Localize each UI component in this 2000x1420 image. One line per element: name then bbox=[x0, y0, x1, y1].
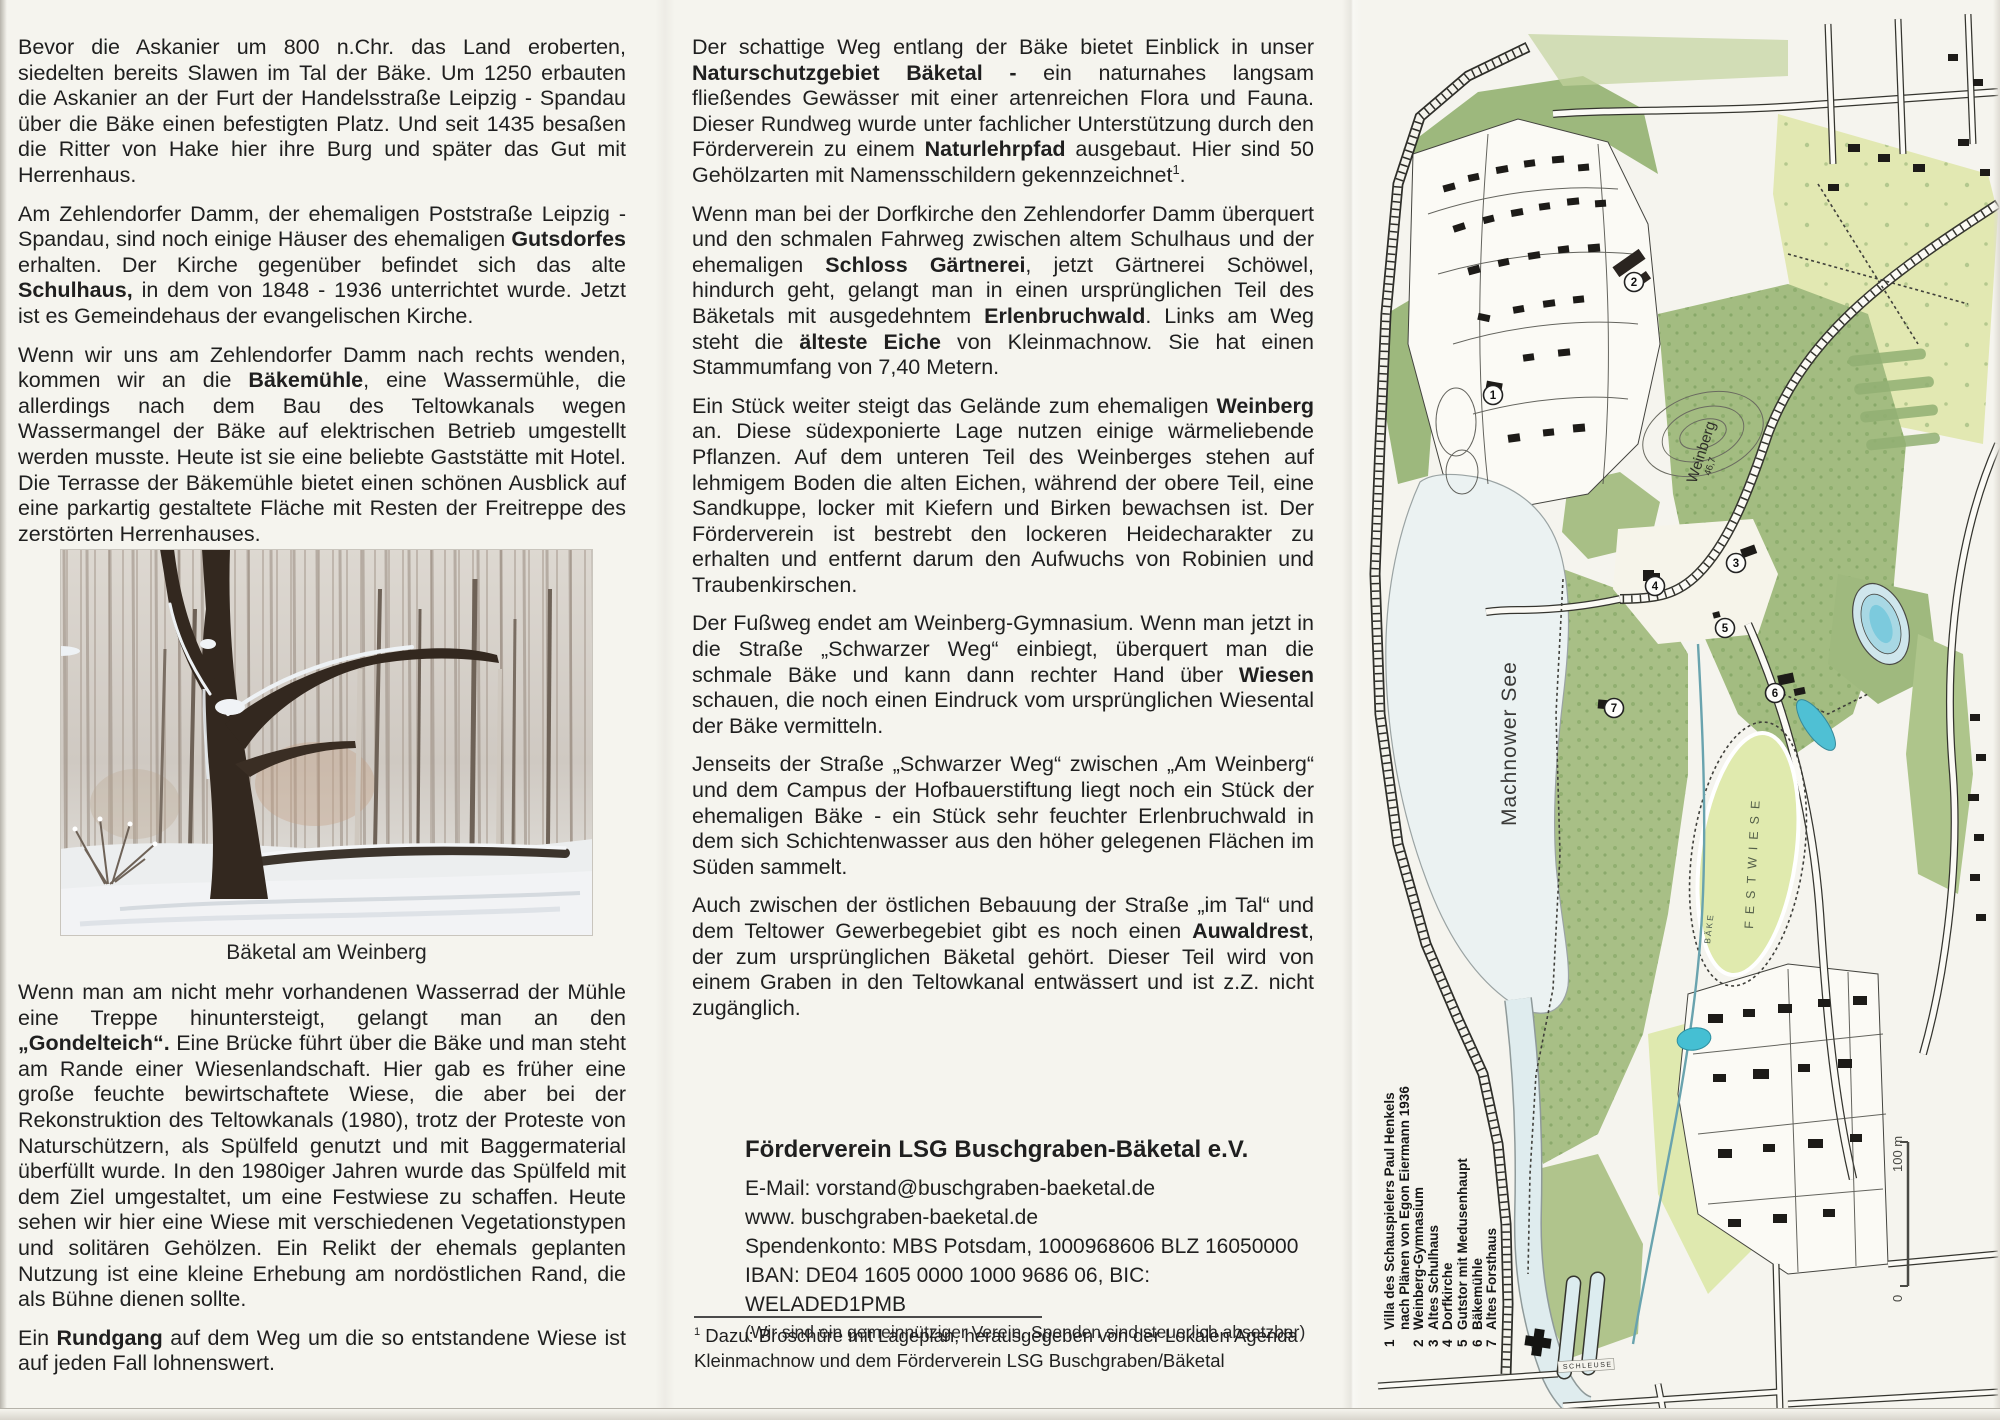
text-run: Eine Brücke führt über die Bäke und man … bbox=[18, 1031, 626, 1311]
footnote-marker: 1 bbox=[1172, 162, 1179, 177]
marker-5: 5 bbox=[1716, 619, 1735, 638]
legend-number bbox=[1398, 1330, 1413, 1347]
legend-entry: 4Dorfkirche bbox=[1441, 1045, 1456, 1347]
legend-entry: nach Plänen von Egon Eiermann 1936 bbox=[1398, 1045, 1413, 1347]
paragraph: Der Fußweg endet am Weinberg-Gymnasium. … bbox=[692, 611, 1314, 739]
legend-label: nach Plänen von Egon Eiermann 1936 bbox=[1398, 1045, 1413, 1330]
text-run: . bbox=[1180, 163, 1186, 187]
legend-entry: 6Bäkemühle bbox=[1471, 1045, 1486, 1347]
contact-line: Spendenkonto: MBS Potsdam, 1000968606 BL… bbox=[745, 1232, 1311, 1261]
svg-text:1: 1 bbox=[1490, 390, 1497, 402]
legend-label: Bäkemühle bbox=[1471, 1045, 1486, 1330]
text-run: Schloss Gärtnerei bbox=[825, 253, 1025, 277]
text-run: Bevor die Askanier um 800 n.Chr. das Lan… bbox=[18, 35, 626, 187]
marker-1: 1 bbox=[1484, 386, 1503, 405]
text-run: , eine Wassermühle, die allerdings nach … bbox=[18, 368, 626, 546]
text-run: Der schattige Weg entlang der Bäke biete… bbox=[692, 35, 1314, 59]
marker-7: 7 bbox=[1605, 699, 1624, 718]
paragraph: Am Zehlendorfer Damm, der ehemaligen Pos… bbox=[18, 202, 626, 330]
contact-block: Förderverein LSG Buschgraben-Bäketal e.V… bbox=[745, 1136, 1311, 1343]
paragraph: Der schattige Weg entlang der Bäke biete… bbox=[692, 35, 1314, 189]
legend-label: Weinberg-Gymnasium bbox=[1412, 1045, 1427, 1330]
text-run: Wenn man am nicht mehr vorhandenen Wasse… bbox=[18, 980, 626, 1030]
legend-number: 2 bbox=[1412, 1330, 1427, 1347]
svg-text:7: 7 bbox=[1611, 703, 1617, 715]
text-run: Naturschutzgebiet Bäketal - bbox=[692, 61, 1017, 85]
scan-edge-right bbox=[1993, 0, 2000, 1419]
middle-column: Der schattige Weg entlang der Bäke biete… bbox=[692, 35, 1314, 1034]
photo-caption: Bäketal am Weinberg bbox=[60, 941, 593, 965]
text-run: schauen, die noch einen Eindruck vom urs… bbox=[692, 688, 1314, 738]
fold-shadow-left bbox=[655, 0, 675, 1419]
legend-number: 1 bbox=[1383, 1330, 1398, 1347]
svg-text:5: 5 bbox=[1722, 623, 1729, 635]
scan-edge-left bbox=[0, 0, 7, 1419]
paragraph: Auch zwischen der östlichen Bebauung der… bbox=[692, 893, 1314, 1021]
legend-number: 6 bbox=[1471, 1330, 1486, 1347]
paragraph: Jenseits der Straße „Schwarzer Weg“ zwis… bbox=[692, 752, 1314, 880]
svg-text:6: 6 bbox=[1772, 688, 1778, 700]
legend-entry: 5Gutstor mit Medusenhaupt bbox=[1456, 1045, 1471, 1347]
legend-number: 5 bbox=[1456, 1330, 1471, 1347]
marker-3: 3 bbox=[1727, 554, 1746, 573]
text-run: Ein Stück weiter steigt das Gelände zum … bbox=[692, 394, 1216, 418]
text-run: Jenseits der Straße „Schwarzer Weg“ zwis… bbox=[692, 752, 1314, 878]
text-run: Naturlehrpfad bbox=[925, 137, 1066, 161]
winter-photo bbox=[60, 549, 593, 936]
map-legend: 1Villa des Schauspielers Paul Henkelsnac… bbox=[1383, 1045, 1500, 1347]
marker-4: 4 bbox=[1646, 577, 1665, 596]
text-run: „Gondelteich“. bbox=[18, 1031, 170, 1055]
legend-entry: 3Altes Schulhaus bbox=[1427, 1045, 1442, 1347]
marker-2: 2 bbox=[1625, 273, 1644, 292]
legend-entry: 2Weinberg-Gymnasium bbox=[1412, 1045, 1427, 1347]
text-run: Bäkemühle bbox=[248, 368, 363, 392]
legend-entry: 1Villa des Schauspielers Paul Henkels bbox=[1383, 1045, 1398, 1347]
association-title: Förderverein LSG Buschgraben-Bäketal e.V… bbox=[745, 1136, 1311, 1164]
paragraph: Wenn wir uns am Zehlendorfer Damm nach r… bbox=[18, 343, 626, 548]
legend-number: 4 bbox=[1441, 1330, 1456, 1347]
legend-label: Altes Forsthaus bbox=[1485, 1045, 1500, 1330]
footnote-text: Dazu: Broschüre mit Lageplan, herausgege… bbox=[694, 1325, 1298, 1371]
winter-photo-illustration bbox=[60, 549, 593, 936]
scan-edge-bottom bbox=[0, 1408, 2000, 1420]
text-run: Rundgang bbox=[57, 1326, 163, 1350]
left-column-upper: Bevor die Askanier um 800 n.Chr. das Lan… bbox=[18, 35, 626, 560]
scale-zero-label: 0 bbox=[1890, 1295, 1905, 1302]
legend-label: Gutstor mit Medusenhaupt bbox=[1456, 1045, 1471, 1330]
text-run: Auwaldrest bbox=[1192, 919, 1308, 943]
footnote: 1 Dazu: Broschüre mit Lageplan, herausge… bbox=[694, 1316, 1312, 1373]
svg-text:2: 2 bbox=[1631, 277, 1637, 289]
legend-label: Villa des Schauspielers Paul Henkels bbox=[1383, 1045, 1398, 1330]
background-trees bbox=[60, 549, 593, 859]
marker-6: 6 bbox=[1766, 684, 1785, 703]
scale-bar: 100 m 0 bbox=[1890, 1136, 1908, 1302]
legend-number: 3 bbox=[1427, 1330, 1442, 1347]
text-run: Erlenbruchwald bbox=[984, 304, 1145, 328]
paragraph: Ein Rundgang auf dem Weg um die so entst… bbox=[18, 1326, 626, 1377]
paragraph: Ein Stück weiter steigt das Gelände zum … bbox=[692, 394, 1314, 599]
text-run: Weinberg bbox=[1216, 394, 1314, 418]
paragraph: Wenn man am nicht mehr vorhandenen Wasse… bbox=[18, 980, 626, 1313]
paragraph: Bevor die Askanier um 800 n.Chr. das Lan… bbox=[18, 35, 626, 189]
svg-text:4: 4 bbox=[1652, 581, 1659, 593]
contact-lines: E-Mail: vorstand@buschgraben-baeketal.de… bbox=[745, 1174, 1311, 1319]
legend-label: Dorfkirche bbox=[1441, 1045, 1456, 1330]
text-run: älteste Eiche bbox=[799, 330, 941, 354]
left-column-lower: Wenn man am nicht mehr vorhandenen Wasse… bbox=[18, 980, 626, 1390]
text-run: Gutsdorfes bbox=[511, 227, 626, 251]
svg-text:3: 3 bbox=[1733, 558, 1739, 570]
footnote-rule bbox=[694, 1316, 1042, 1318]
paragraph: Wenn man bei der Dorfkirche den Zehlendo… bbox=[692, 202, 1314, 381]
legend-entry: 7Altes Forsthaus bbox=[1485, 1045, 1500, 1347]
contact-line: E-Mail: vorstand@buschgraben-baeketal.de bbox=[745, 1174, 1311, 1203]
scale-max-label: 100 m bbox=[1890, 1136, 1905, 1172]
text-run: Der Fußweg endet am Weinberg-Gymnasium. … bbox=[692, 611, 1314, 686]
text-run: Wiesen bbox=[1239, 663, 1314, 687]
legend-label: Altes Schulhaus bbox=[1427, 1045, 1442, 1330]
lake-label: Machnower See bbox=[1498, 661, 1521, 826]
contact-line: IBAN: DE04 1605 0000 1000 9686 06, BIC: … bbox=[745, 1261, 1311, 1319]
text-run: erhalten. Der Kirche gegenüber befindet … bbox=[18, 253, 626, 277]
contact-line: www. buschgraben-baeketal.de bbox=[745, 1203, 1311, 1232]
text-run: an. Diese südexponierte Lage nutzen eini… bbox=[692, 419, 1314, 597]
text-run: Schulhaus, bbox=[18, 278, 133, 302]
legend-number: 7 bbox=[1485, 1330, 1500, 1347]
text-run: Ein bbox=[18, 1326, 57, 1350]
lake-machnower-see bbox=[1386, 474, 1569, 1013]
